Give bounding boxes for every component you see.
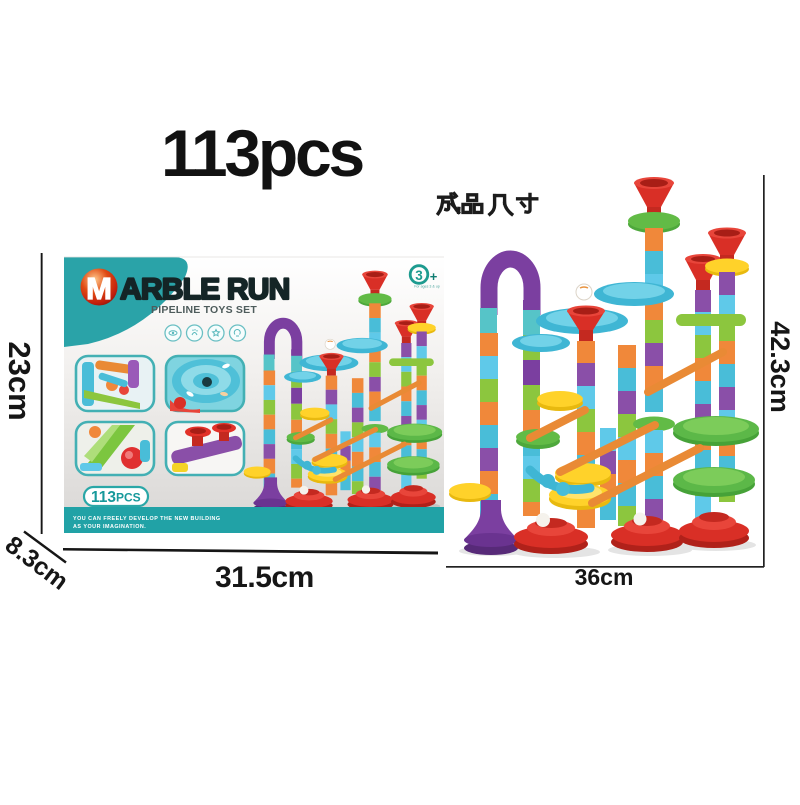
svg-text:113pcs: 113pcs — [161, 116, 362, 190]
svg-text:36cm: 36cm — [575, 564, 634, 590]
svg-text:YOU CAN FREELY DEVELOP THE NEW: YOU CAN FREELY DEVELOP THE NEW BUILDING — [73, 516, 221, 522]
svg-text:ARBLE RUN: ARBLE RUN — [120, 273, 289, 306]
svg-text:PIPELINE TOYS SET: PIPELINE TOYS SET — [151, 304, 257, 316]
svg-text:AS YOUR IMAGINATION.: AS YOUR IMAGINATION. — [73, 524, 146, 530]
svg-text:3: 3 — [415, 268, 423, 283]
svg-text:23cm: 23cm — [2, 341, 37, 420]
svg-text:31.5cm: 31.5cm — [215, 561, 314, 594]
svg-text:42.3cm: 42.3cm — [765, 321, 795, 413]
svg-text:113PCS: 113PCS — [91, 489, 141, 506]
svg-text:M: M — [86, 271, 112, 306]
svg-text:For ages 3 & up: For ages 3 & up — [414, 285, 440, 289]
svg-text:+: + — [430, 269, 438, 284]
